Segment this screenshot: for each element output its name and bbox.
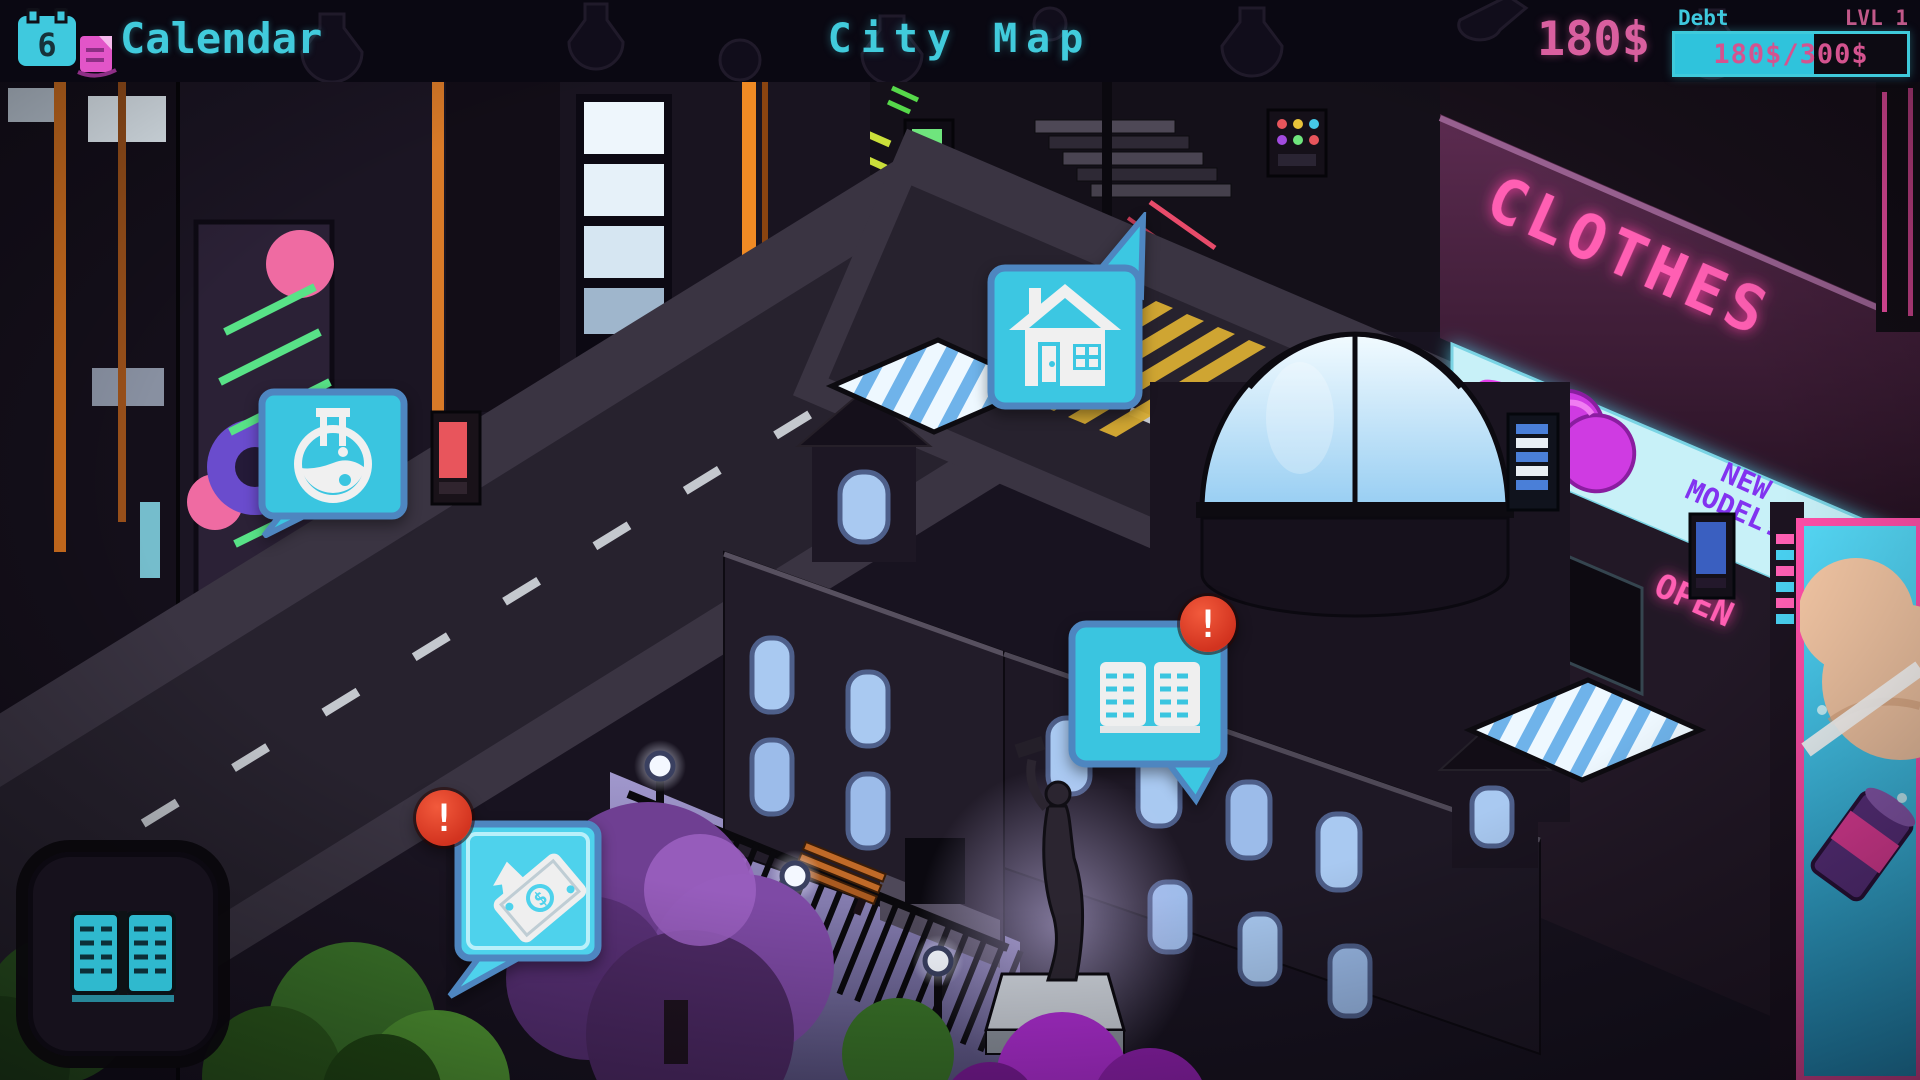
calendar-day: 6 [37, 26, 56, 64]
money-display: 180$ [1537, 12, 1650, 67]
page-title: City Map [828, 16, 1093, 62]
calendar-icon: 6 [14, 6, 80, 74]
debt-widget: Debt LVL 1 180$/300$ [1672, 4, 1910, 78]
level-display: LVL 1 [1845, 6, 1908, 30]
debt-bar: 180$/300$ [1672, 31, 1910, 77]
open-book-icon [60, 899, 186, 1009]
debt-text: 180$/300$ [1675, 34, 1907, 74]
game-screen: CLOTHES NEW MODEL! OPEN [0, 0, 1920, 1080]
page-flip-icon [74, 28, 120, 80]
map-marker-laboratory[interactable] [256, 386, 411, 542]
calendar-widget[interactable]: 6 Calendar [14, 6, 322, 76]
map-marker-home[interactable] [985, 212, 1150, 416]
alert-badge: ! [416, 790, 472, 846]
top-bar: 6 Calendar City Map 180$ Debt LVL 1 180$… [0, 0, 1920, 82]
journal-button[interactable] [28, 852, 218, 1056]
alert-badge: ! [1180, 596, 1236, 652]
house-icon [985, 212, 1150, 412]
map-marker-journal[interactable]: ! [1066, 610, 1236, 814]
city-map-scene: CLOTHES NEW MODEL! OPEN [0, 82, 1920, 1080]
debt-label: Debt [1678, 6, 1729, 30]
map-marker-work[interactable]: $ ! [428, 802, 606, 1006]
vignette [0, 82, 1920, 1080]
calendar-label: Calendar [120, 6, 322, 72]
flask-icon [256, 386, 411, 538]
